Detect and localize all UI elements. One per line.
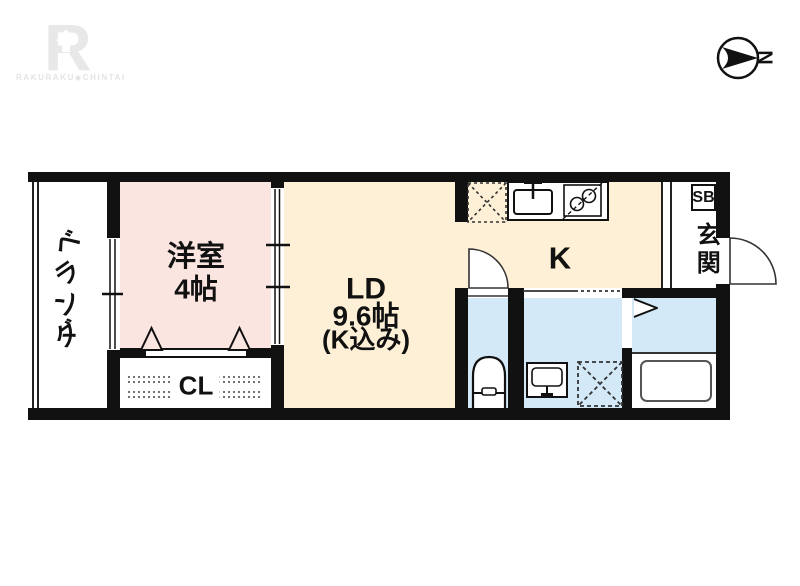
wall-balcony-upper — [107, 182, 120, 238]
entrance-step-line — [661, 182, 672, 288]
wall-bedroom-ld-lower — [271, 345, 284, 420]
balcony-edge-line — [32, 182, 39, 408]
wall-bottom — [28, 408, 730, 420]
toilet-floor — [468, 298, 508, 408]
floorplan-page: R RAKURAKU◆CHINTAI N — [0, 0, 800, 586]
wall-ld-toilet — [455, 288, 468, 408]
compass-north-label: N — [753, 50, 776, 64]
wall-kitchen-stub — [455, 182, 468, 222]
brand-logo-text: RAKURAKU◆CHINTAI — [16, 73, 126, 82]
shoebox-label: SB — [692, 189, 714, 207]
logo-up-arrow-stem — [62, 40, 70, 52]
wall-closet-right — [246, 348, 271, 358]
wall-toilet-washroom — [508, 298, 524, 408]
bedroom-name-label: 洋室 — [167, 242, 225, 272]
washroom-floor — [524, 298, 622, 408]
balcony-label: ベランダ — [48, 228, 88, 350]
bathroom-wet-floor — [632, 298, 716, 352]
bathtub — [640, 360, 712, 402]
wall-top — [28, 172, 730, 182]
closet-door-track — [146, 348, 246, 358]
wall-wet-band-b — [508, 288, 524, 298]
closet-label: CL — [173, 372, 220, 399]
entrance-label: 玄関 — [693, 222, 718, 278]
wall-closet-left — [120, 348, 146, 358]
living-note-label: (K込み) — [322, 326, 410, 353]
wall-right-lower — [716, 284, 730, 408]
entrance-door-icon — [730, 238, 776, 284]
wall-washroom-bath — [622, 348, 632, 408]
wall-wet-band-c — [622, 288, 716, 298]
wall-bedroom-ld-upper — [271, 172, 284, 188]
shoebox-box: SB — [691, 184, 716, 211]
kitchen-label: K — [549, 243, 571, 276]
bedroom-size-label: 4帖 — [174, 274, 218, 303]
wall-balcony-lower — [107, 350, 120, 408]
